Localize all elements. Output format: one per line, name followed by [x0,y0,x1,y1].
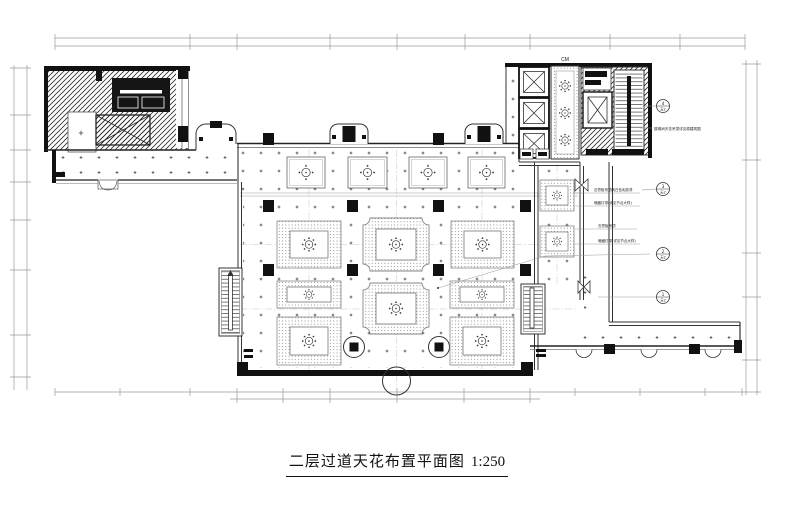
annex-open-area [68,112,96,152]
drawing-scale: 1:250 [471,454,505,470]
control-box [520,149,533,159]
corridor-door-recess [98,180,118,190]
annex-inner-room [96,115,150,145]
svg-text:天2: 天2 [660,191,666,195]
floor-plan-drawing: CM [0,0,800,509]
svg-text:2: 2 [662,249,665,254]
column [689,344,700,354]
door-arc [576,350,592,358]
ceiling-panel-lobby [540,180,574,211]
detail-bubble: 3 天2 [657,183,670,196]
round-column [429,337,450,358]
ceiling-coffer-narrow [450,281,514,308]
detail-bubble: 2 天2 [657,248,670,261]
elevator-shaft [519,67,549,97]
north-bay-window [330,124,368,144]
detail-bubble: 1 天2 [657,291,670,304]
column [734,340,742,353]
ceiling-coffer-narrow [277,281,341,308]
elevator-lobby-strip [551,66,579,159]
west-staircase [219,268,242,336]
column [433,133,444,145]
note-2: 暗藏灯带(详见节点大样) [594,200,632,205]
ceiling-coffer [451,221,514,268]
note-4: 暗藏灯带(详见节点大样) [598,238,636,243]
northeast-stair-block [581,63,652,158]
svg-text:天2: 天2 [660,256,666,260]
control-box [536,149,549,159]
svg-text:4: 4 [662,101,665,106]
elevator-shaft [519,98,549,128]
svg-text:3: 3 [662,184,665,189]
ceiling-coffer [277,221,341,268]
ceiling-panel-square [409,157,447,188]
ceiling-panel-square [287,157,325,188]
hatched-annex-block [44,66,196,152]
door-arc [641,350,657,358]
ceiling-coffer-chamfered [363,283,429,334]
northeast-staircase [614,70,644,152]
ceiling-panel-square [348,157,387,188]
svg-text:1: 1 [662,292,665,297]
detail-bubble: 4 天2 [657,100,670,113]
svg-text:天2: 天2 [660,299,666,303]
door-symbol [575,179,588,191]
north-bay-window [465,124,503,144]
core-mark-label: CM [561,57,569,63]
drawing-title: 二层过道天花布置平面图1:250 [286,450,508,477]
ceiling-coffer-chamfered [363,218,429,271]
ceiling-coffer [450,317,514,365]
drawing-title-text: 二层过道天花布置平面图 [289,454,465,470]
ceiling-panel-lobby [540,226,574,257]
machine-room [583,68,611,90]
north-bay-window [196,121,236,150]
round-column [344,337,365,358]
note-3: 石膏板吊顶 [598,223,616,228]
ceiling-coffer [277,317,341,365]
column [263,133,274,145]
annex-equipment-room [112,78,170,112]
service-elevator [583,92,612,128]
svg-text:天2: 天2 [660,108,666,112]
east-staircase [521,284,545,334]
note-1: 石膏板吊顶刷白色乳胶漆 [594,187,633,192]
column [604,344,615,354]
door-arc [705,350,721,358]
drawing-sheet: CM [0,0,800,509]
ceiling-panel-square [468,157,505,188]
note-stair-block: 楼梯间天花吊顶详见原建筑图 [654,126,701,131]
